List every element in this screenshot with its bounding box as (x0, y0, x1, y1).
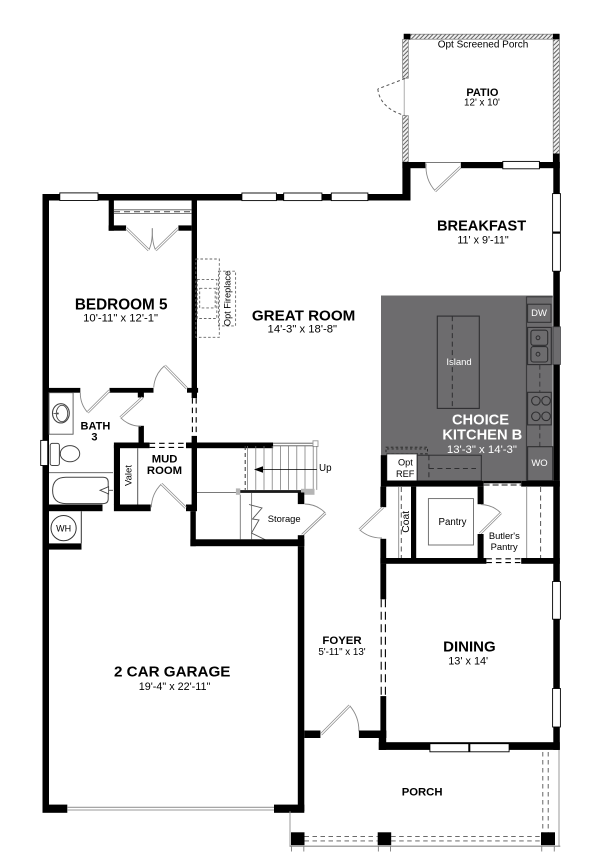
svg-text:13' x 14': 13' x 14' (448, 656, 488, 668)
svg-text:2 CAR GARAGE: 2 CAR GARAGE (114, 663, 230, 680)
svg-text:DINING: DINING (443, 639, 496, 656)
svg-text:Up: Up (319, 463, 332, 474)
svg-text:Pantry: Pantry (491, 541, 518, 552)
svg-text:Opt Fireplace: Opt Fireplace (222, 271, 232, 326)
svg-text:Island: Island (446, 357, 471, 368)
svg-text:Butler's: Butler's (489, 530, 520, 541)
svg-text:KITCHEN B: KITCHEN B (442, 428, 522, 444)
svg-text:BEDROOM 5: BEDROOM 5 (75, 297, 168, 314)
svg-text:REF: REF (396, 469, 415, 479)
svg-text:WH: WH (56, 523, 71, 533)
svg-text:10'-11" x 12'-1": 10'-11" x 12'-1" (83, 313, 158, 325)
svg-text:Opt Screened Porch: Opt Screened Porch (438, 40, 529, 51)
svg-text:DW: DW (531, 308, 547, 319)
svg-text:Storage: Storage (268, 513, 301, 524)
svg-text:12' x 10': 12' x 10' (464, 98, 500, 109)
svg-text:11' x 9'-11": 11' x 9'-11" (457, 234, 509, 246)
svg-text:MUD: MUD (152, 454, 178, 466)
svg-text:Coat: Coat (401, 511, 412, 533)
svg-text:BATH: BATH (81, 420, 111, 432)
svg-text:Valet: Valet (123, 465, 134, 486)
svg-text:14'-3" x 18'-8": 14'-3" x 18'-8" (268, 323, 337, 335)
svg-text:GREAT ROOM: GREAT ROOM (252, 307, 356, 324)
svg-text:FOYER: FOYER (322, 635, 361, 647)
svg-text:PORCH: PORCH (402, 786, 443, 798)
svg-text:ROOM: ROOM (147, 465, 182, 477)
svg-text:3: 3 (91, 432, 97, 444)
svg-text:CHOICE: CHOICE (452, 412, 509, 428)
svg-text:5'-11" x 13': 5'-11" x 13' (318, 647, 365, 658)
svg-text:Pantry: Pantry (439, 517, 467, 528)
svg-text:BREAKFAST: BREAKFAST (437, 218, 526, 234)
svg-text:Opt: Opt (398, 458, 413, 468)
svg-text:WO: WO (531, 458, 547, 469)
svg-text:19'-4" x 22'-11": 19'-4" x 22'-11" (139, 681, 211, 693)
svg-text:13'-3" x 14'-3": 13'-3" x 14'-3" (447, 444, 517, 456)
